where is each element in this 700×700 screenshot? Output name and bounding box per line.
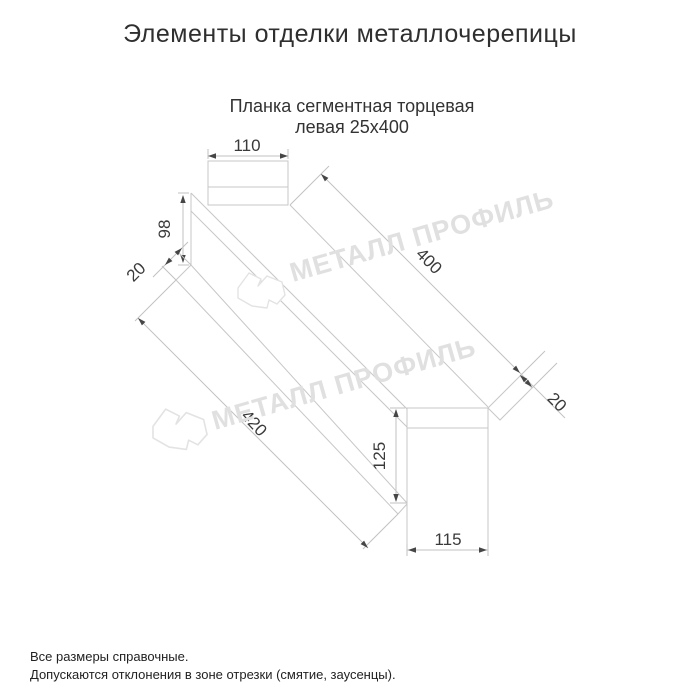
dimension-right-end-height: 125 <box>370 408 407 503</box>
dimension-right-end-width: 115 <box>407 530 488 556</box>
arrow-left <box>208 153 216 159</box>
bottom-flap-end-edge <box>176 265 191 280</box>
footer-note-line2: Допускаются отклонения в зоне отрезки (с… <box>30 666 396 684</box>
watermark-text-lower: МЕТАЛЛ ПРОФИЛЬ <box>208 332 479 436</box>
technical-drawing: 110 98 20 400 20 <box>0 0 700 700</box>
brand-logo-icon <box>153 409 207 449</box>
dimension-left-fold: 20 <box>123 242 191 286</box>
watermark-text-upper: МЕТАЛЛ ПРОФИЛЬ <box>286 184 557 288</box>
arrow-top <box>393 409 398 417</box>
dim-label-125: 125 <box>370 442 389 470</box>
footer-notes: Все размеры справочные. Допускаются откл… <box>30 648 396 684</box>
arrow-right <box>280 153 288 159</box>
dim-label-20-right: 20 <box>543 389 570 416</box>
dim-label-98: 98 <box>155 220 174 239</box>
dim-label-20-left: 20 <box>123 259 150 286</box>
watermarks: МЕТАЛЛ ПРОФИЛЬ МЕТАЛЛ ПРОФИЛЬ <box>153 184 557 450</box>
bottom-flap-right-edge <box>398 504 407 514</box>
dimension-top-flange-width: 110 <box>208 136 288 159</box>
brand-logo-icon <box>238 273 285 308</box>
arrow-top <box>180 195 185 203</box>
arrow-left <box>408 547 416 553</box>
top-flange-face <box>208 161 288 205</box>
dim-label-115: 115 <box>434 530 461 549</box>
dimension-left-end-height: 98 <box>155 193 189 265</box>
footer-note-line1: Все размеры справочные. <box>30 648 396 666</box>
dim-label-110: 110 <box>233 136 260 155</box>
drawing-page: Элементы отделки металлочерепицы Планка … <box>0 0 700 700</box>
arrow-right <box>479 547 487 553</box>
right-end-face <box>407 408 488 550</box>
arrow-bottom <box>393 494 398 502</box>
